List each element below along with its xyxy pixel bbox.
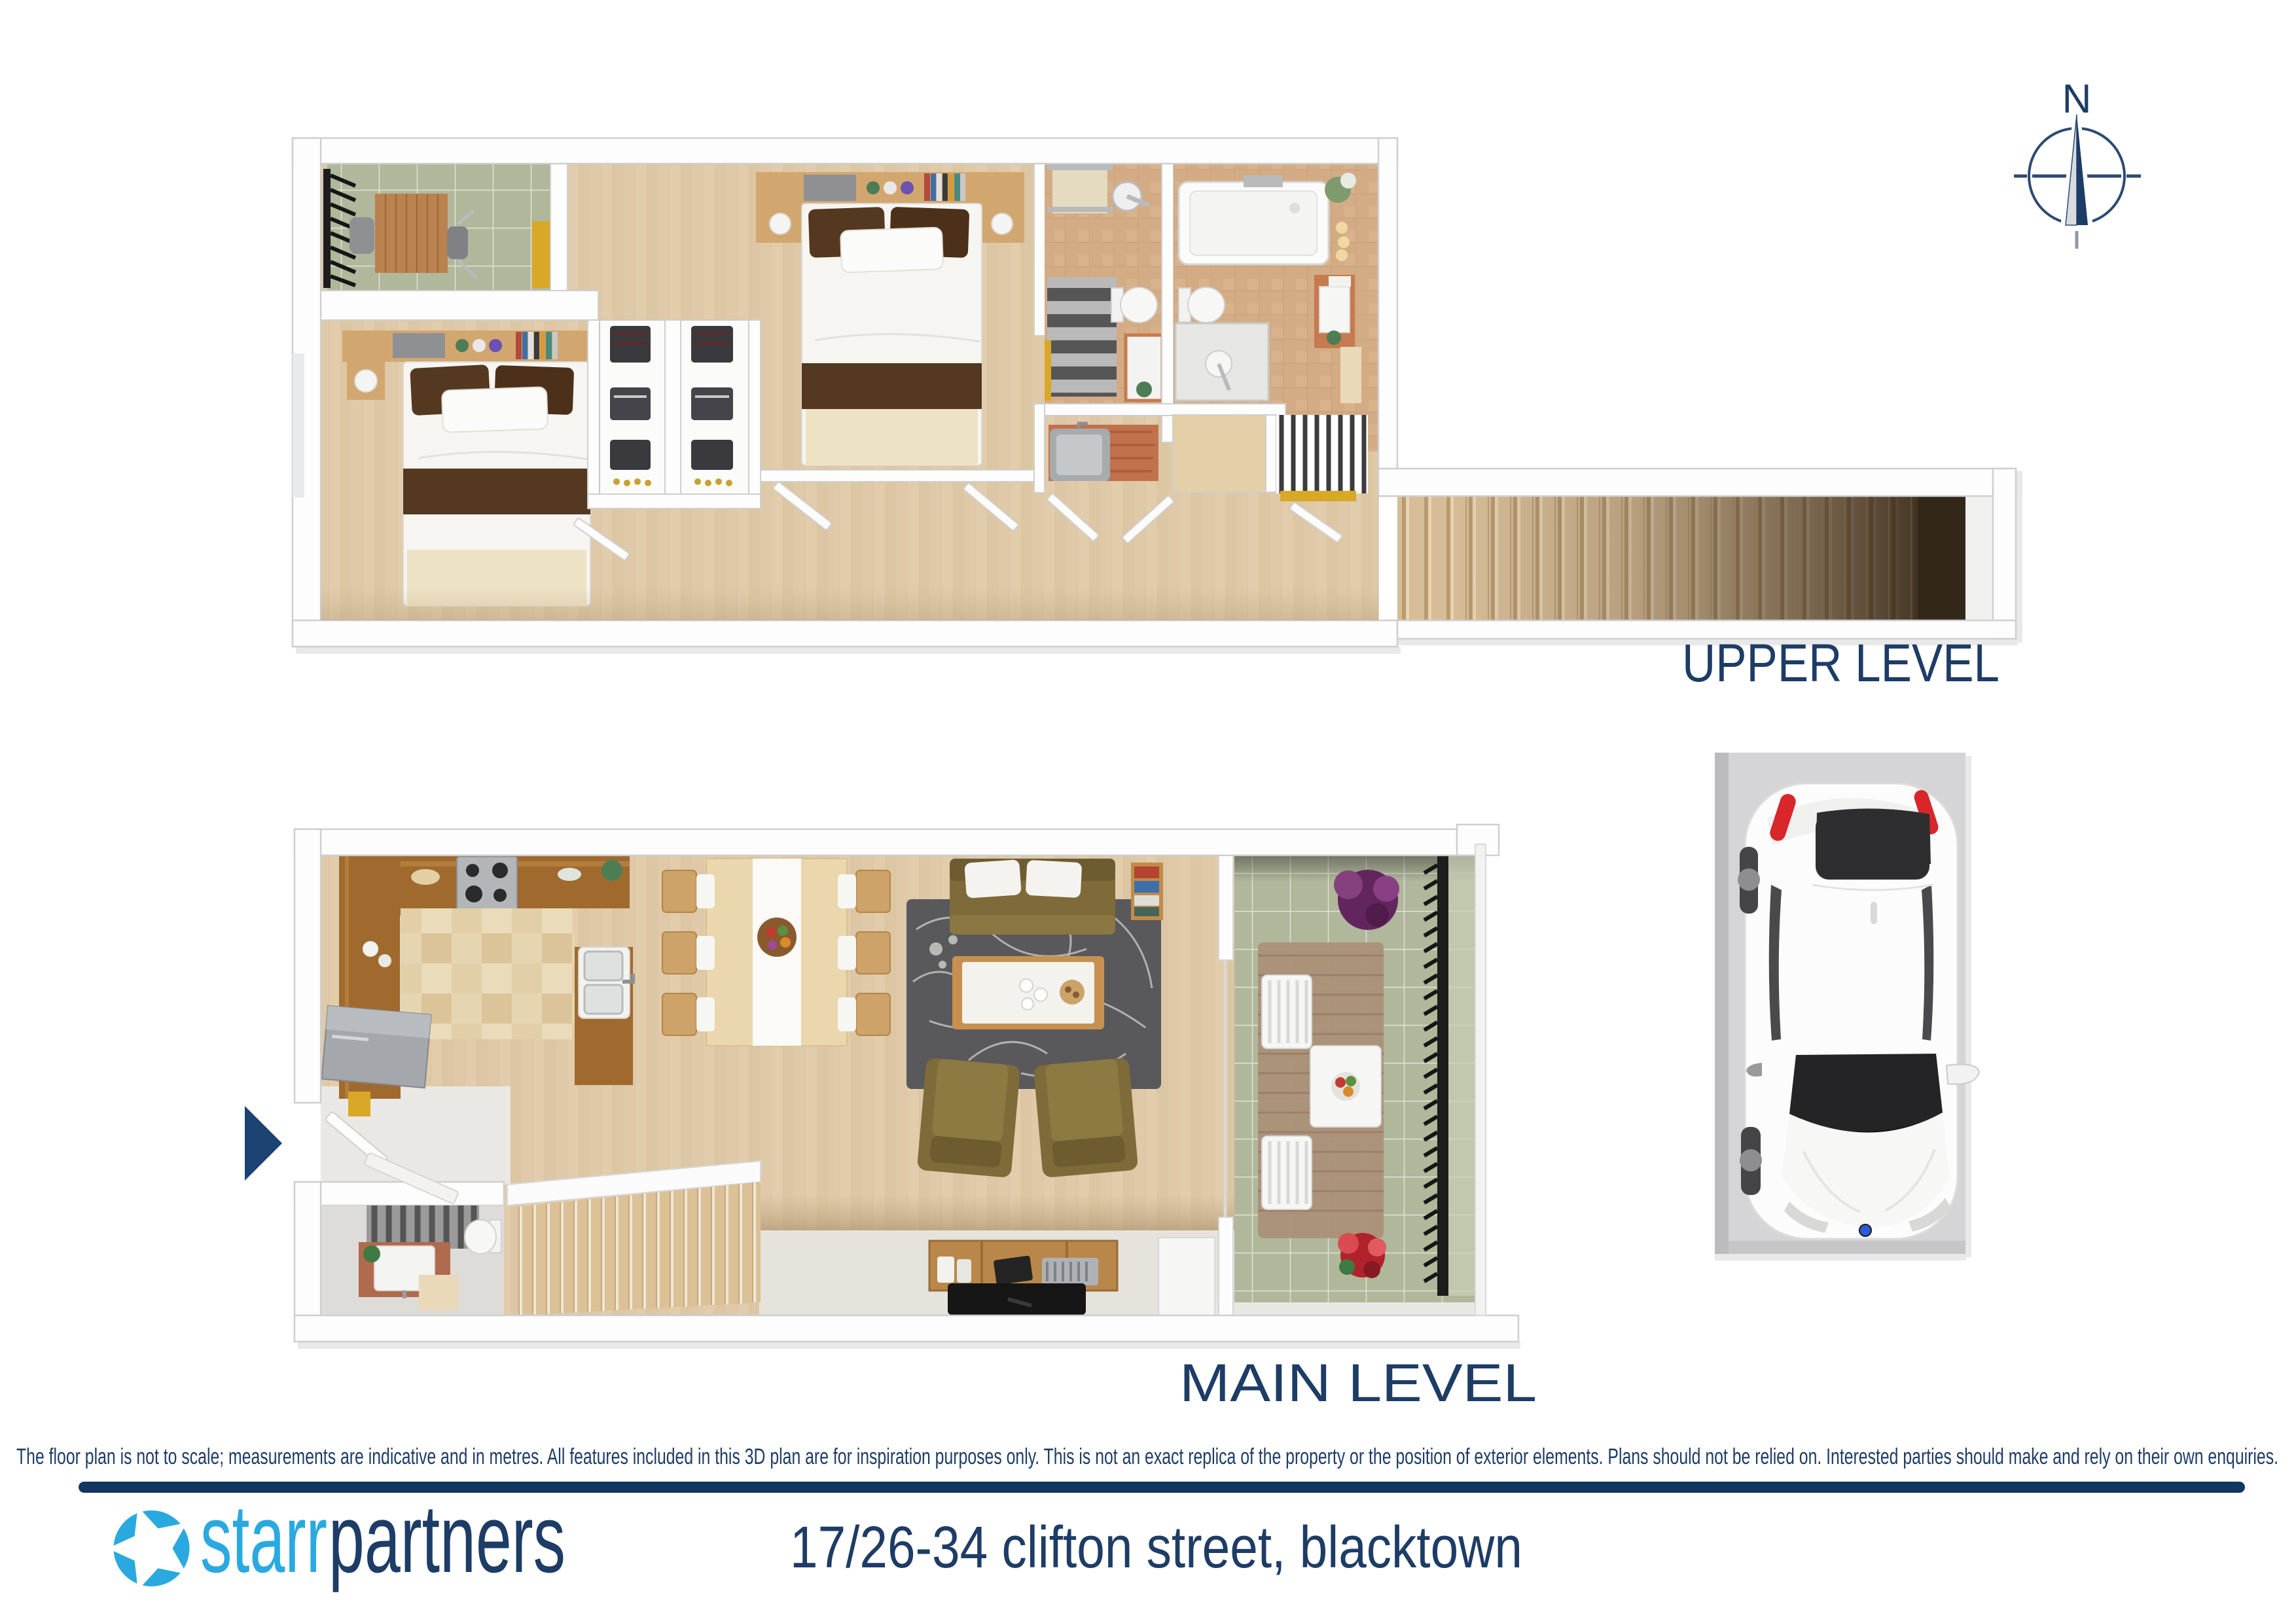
- svg-text:17/26-34 clifton street, black: 17/26-34 clifton street, blacktown: [790, 1515, 1522, 1580]
- svg-text:The floor plan is not to scale: The floor plan is not to scale; measurem…: [16, 1444, 2278, 1469]
- svg-text:partners: partners: [329, 1485, 565, 1593]
- svg-text:starr: starr: [200, 1485, 327, 1593]
- svg-text:UPPER LEVEL: UPPER LEVEL: [1682, 633, 2000, 693]
- svg-text:MAIN LEVEL: MAIN LEVEL: [1179, 1353, 1537, 1413]
